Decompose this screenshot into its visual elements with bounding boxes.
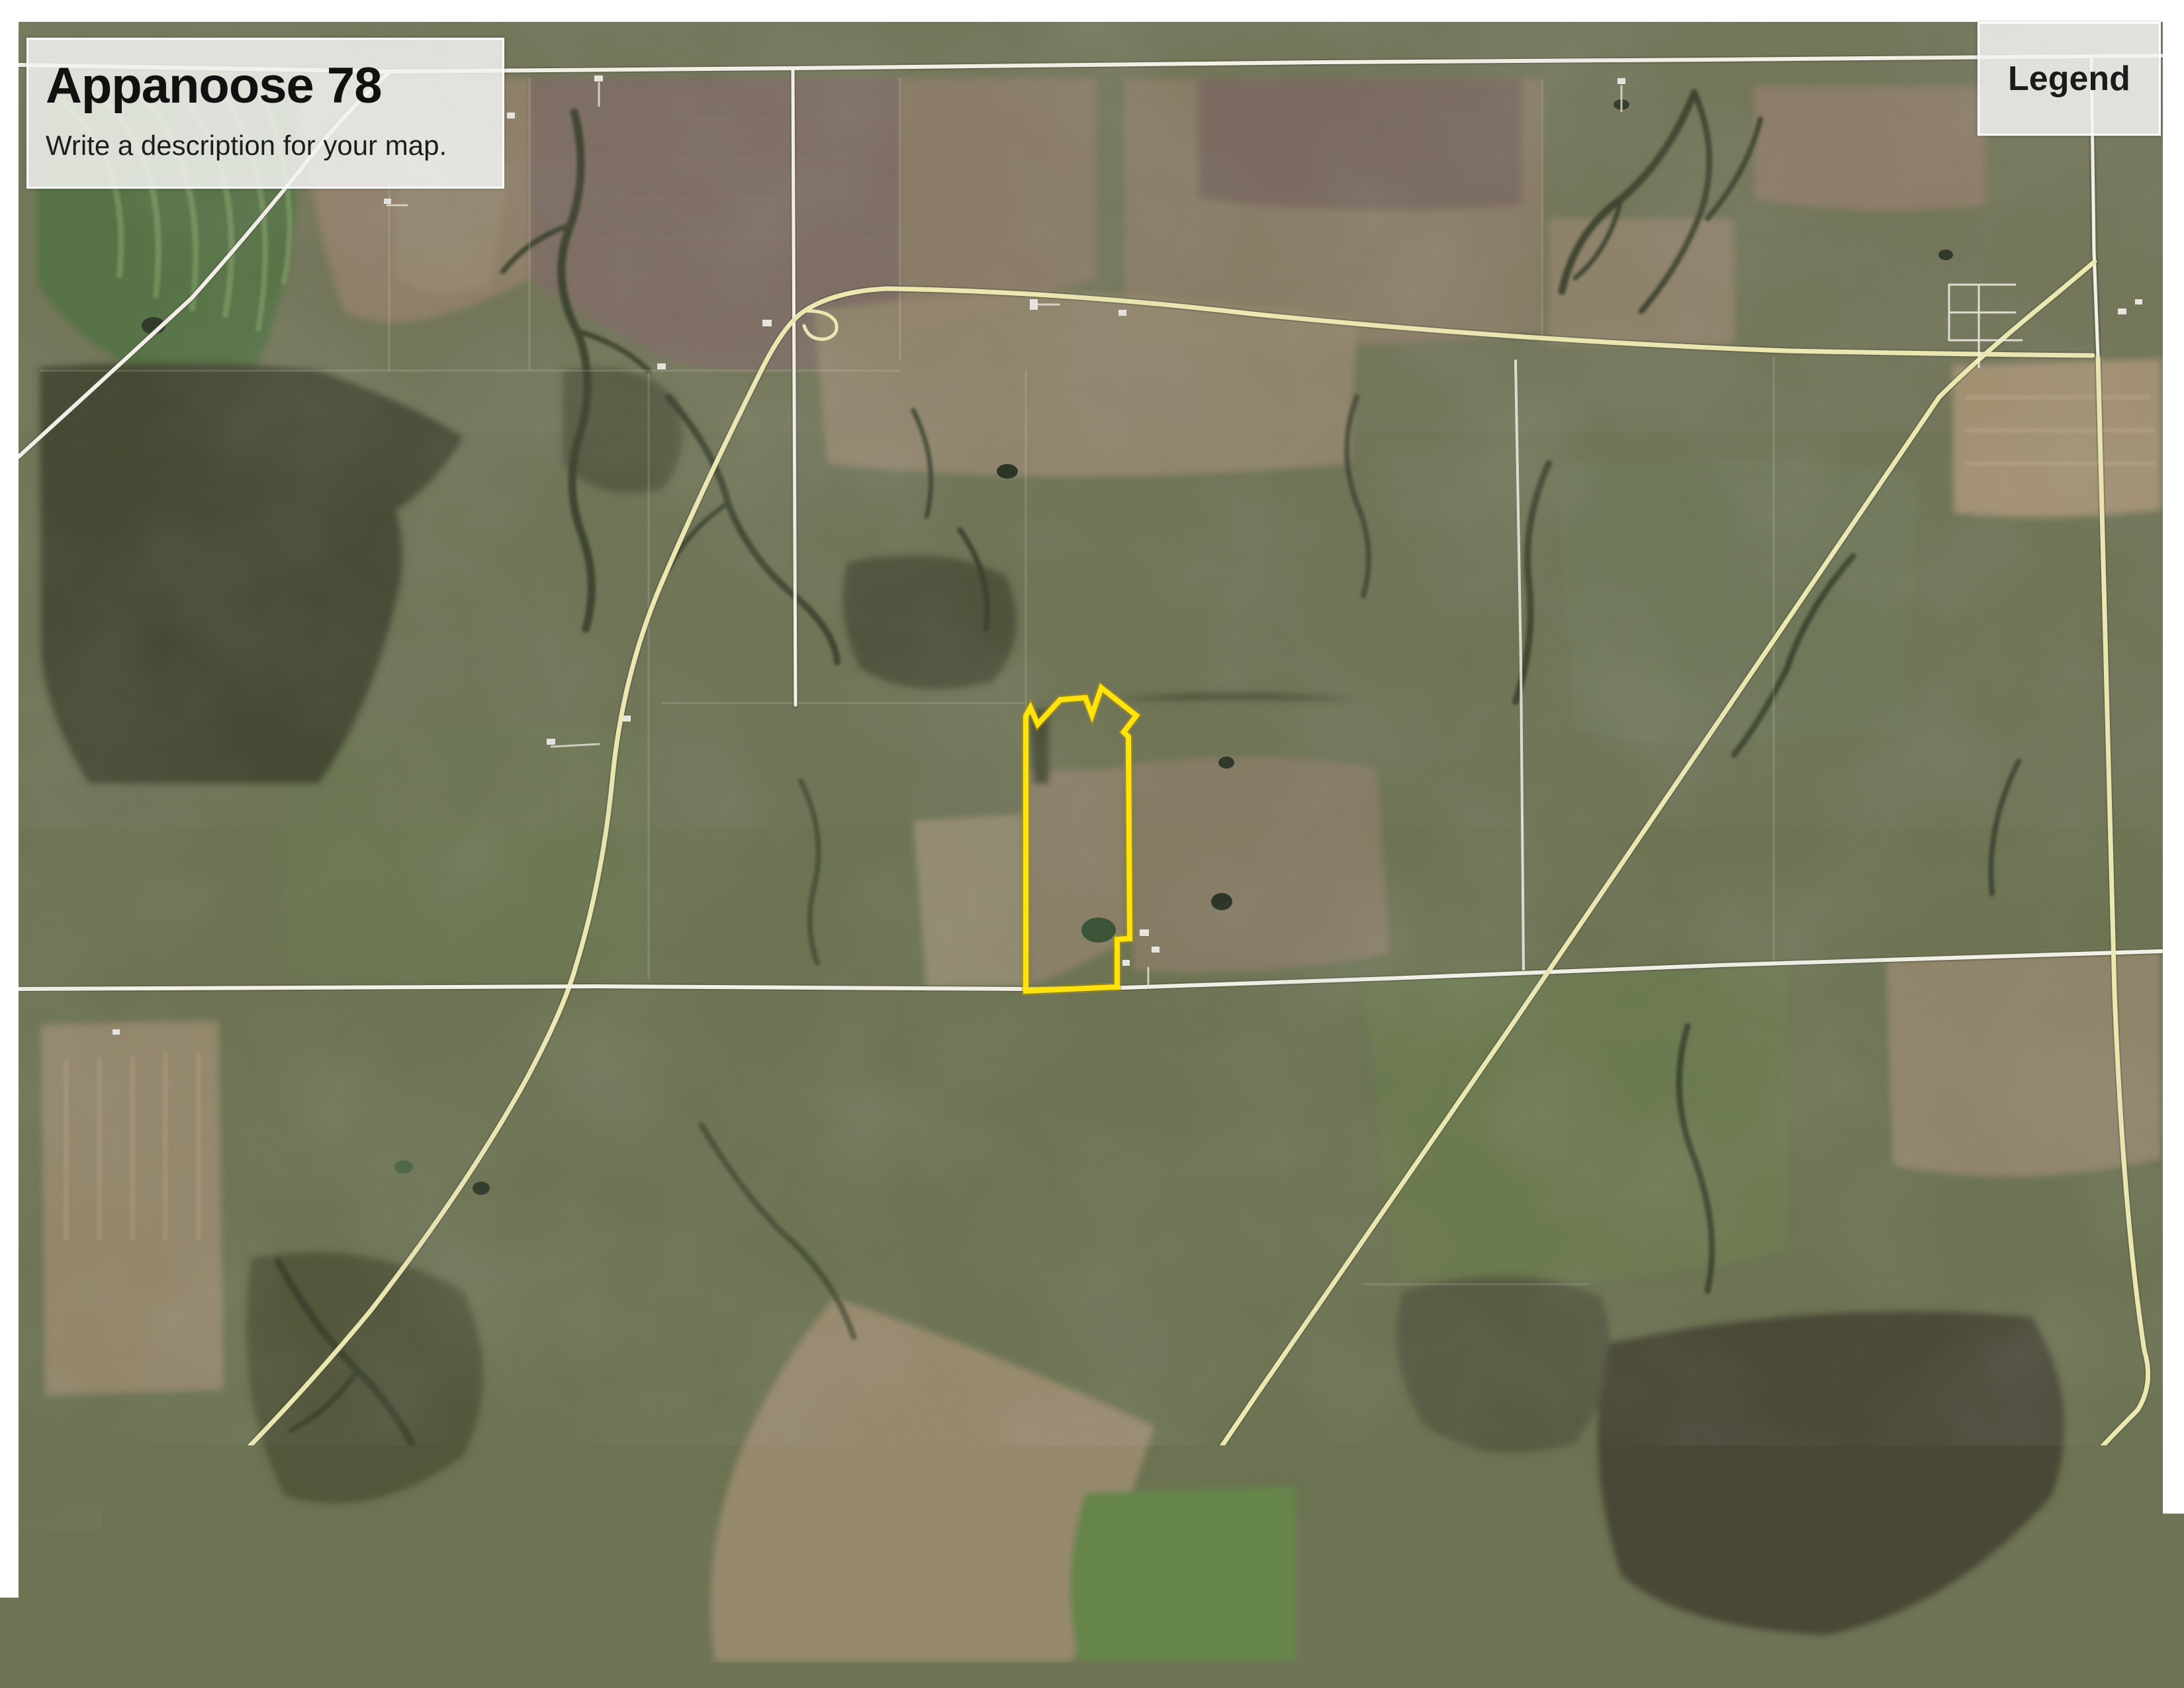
north-arrow: N xyxy=(2044,1460,2116,1613)
copyright-text: © 2018 Google xyxy=(22,1628,147,1650)
scale-bar-label: 1 mi xyxy=(1878,1619,1942,1658)
texture-overlays xyxy=(19,22,2163,1663)
map-title-box: Appanoose 78 Write a description for you… xyxy=(26,38,504,189)
satellite-terrain xyxy=(19,22,2163,1663)
map-canvas[interactable] xyxy=(19,22,2163,1663)
north-arrow-icon xyxy=(2056,1475,2101,1536)
north-arrow-label: N xyxy=(2052,1535,2105,1613)
map-title: Appanoose 78 xyxy=(46,60,485,113)
logo-earth: Earth xyxy=(175,1538,279,1587)
logo-google: Google xyxy=(22,1538,163,1587)
legend-box: Legend xyxy=(1978,22,2161,136)
google-earth-logo: GoogleEarth xyxy=(22,1537,279,1587)
legend-label: Legend xyxy=(2008,59,2130,99)
map-description: Write a description for your map. xyxy=(46,130,485,162)
google-earth-export: { "title_box": { "title": "Appanoose 78"… xyxy=(0,0,2184,1688)
scale-bar: 1 mi xyxy=(1657,1609,2163,1681)
